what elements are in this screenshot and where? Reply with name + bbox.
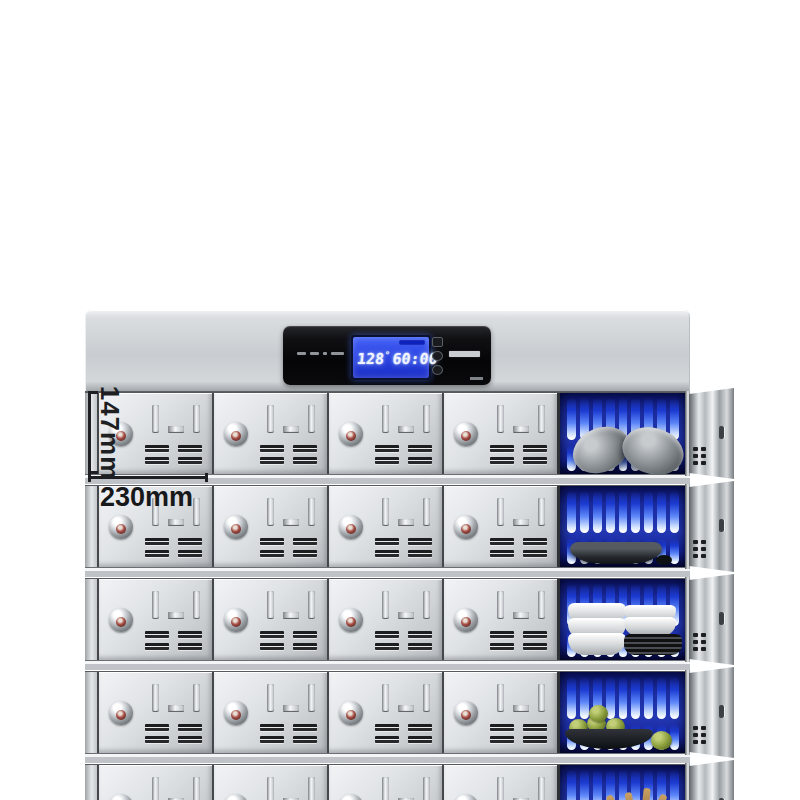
model-label	[470, 377, 483, 380]
open-compartment	[557, 765, 686, 800]
width-dimension-label: 230mm	[100, 482, 208, 513]
vent-slot	[178, 643, 202, 650]
locker-door	[97, 765, 212, 800]
door-lock-icon	[339, 515, 363, 539]
locker-door	[212, 486, 327, 567]
handle-bar	[398, 705, 414, 711]
brand-label	[449, 351, 480, 357]
door-lock-icon	[109, 701, 133, 725]
door-handle	[382, 498, 430, 525]
vent-hole	[693, 640, 698, 644]
lcd-degree-symbol: °	[384, 350, 390, 360]
vent-slot	[375, 631, 399, 638]
vent-slot	[375, 724, 399, 731]
vent-slot	[375, 550, 399, 557]
handle-bar	[193, 405, 200, 432]
dark-fruit-bowl-image	[565, 729, 653, 749]
cabinet-left-frame	[85, 765, 97, 800]
door-vents	[490, 445, 547, 464]
vent-slot	[178, 457, 202, 464]
handle-bar	[513, 519, 529, 525]
vent-slot	[408, 724, 432, 731]
open-door-vents	[693, 540, 706, 558]
handle-bar	[398, 426, 414, 432]
locker-door	[442, 393, 557, 474]
locker-row-3	[85, 578, 690, 661]
vent-slot	[178, 445, 202, 452]
vent-hole	[693, 447, 698, 451]
compartment-contents-dark-plate-and-small-item	[560, 486, 686, 567]
vent-slot	[523, 643, 547, 650]
door-lock-icon	[109, 515, 133, 539]
vent-hole	[693, 726, 698, 730]
door-vents	[375, 631, 432, 650]
door-handle	[382, 777, 430, 800]
vent-slot	[178, 550, 202, 557]
door-lock-icon	[454, 515, 478, 539]
wooden-utensil-image	[640, 788, 651, 800]
handle-bar	[423, 591, 430, 618]
vent-hole	[693, 540, 698, 544]
door-handle	[497, 405, 545, 432]
locker-door	[97, 579, 212, 660]
open-compartment	[557, 579, 686, 660]
vent-slot	[145, 445, 169, 452]
small-item-image	[656, 555, 672, 565]
door-handle	[267, 777, 315, 800]
vent-slot	[523, 457, 547, 464]
vent-slot	[260, 445, 284, 452]
wooden-utensil-image	[605, 794, 626, 800]
vent-slot	[490, 736, 514, 743]
locker-door	[442, 765, 557, 800]
handle-bar	[193, 684, 200, 711]
dark-plate-image	[570, 542, 662, 564]
door-vents	[260, 538, 317, 557]
vent-slot	[375, 445, 399, 452]
door-vents	[145, 445, 202, 464]
open-door-panel	[689, 388, 734, 479]
door-handle	[267, 405, 315, 432]
locker-door	[327, 579, 442, 660]
green-fruit-image	[589, 705, 608, 722]
vent-slot	[375, 643, 399, 650]
vent-slot	[260, 631, 284, 638]
door-handle	[382, 405, 430, 432]
vent-hole	[701, 454, 706, 458]
vent-slot	[523, 736, 547, 743]
vent-slot	[375, 736, 399, 743]
vent-slot	[408, 445, 432, 452]
compartment-contents-two-gray-bowls	[560, 393, 686, 474]
handle-bar	[497, 684, 504, 711]
door-handle	[497, 498, 545, 525]
vent-hole	[701, 447, 706, 451]
handle-bar	[308, 498, 315, 525]
handle-bar	[308, 777, 315, 800]
vent-slot	[145, 724, 169, 731]
vent-slot	[178, 538, 202, 545]
door-handle	[267, 684, 315, 711]
vent-slot	[523, 550, 547, 557]
door-handle	[497, 684, 545, 711]
vent-slot	[523, 538, 547, 545]
vent-hole	[693, 454, 698, 458]
handle-bar	[382, 498, 389, 525]
panel-function-labels	[297, 352, 344, 355]
door-vents	[260, 445, 317, 464]
vent-slot	[260, 643, 284, 650]
vent-slot	[490, 724, 514, 731]
compartment-contents-wooden-utensils-in-canister	[560, 765, 686, 800]
vent-slot	[145, 538, 169, 545]
panel-buttons	[432, 337, 443, 375]
vent-hole	[701, 640, 706, 644]
vent-slot	[145, 457, 169, 464]
door-handle	[267, 591, 315, 618]
vent-hole	[701, 740, 706, 744]
white-bowl	[568, 633, 626, 655]
vent-slot	[293, 643, 317, 650]
vent-slot	[260, 724, 284, 731]
handle-bar	[398, 519, 414, 525]
locker-door	[212, 672, 327, 753]
panel-button-icon	[432, 365, 443, 375]
handle-bar	[267, 405, 274, 432]
open-door-handle	[719, 519, 724, 532]
open-door-panel	[689, 667, 734, 758]
vent-slot	[408, 736, 432, 743]
vent-slot	[145, 550, 169, 557]
vent-hole	[701, 461, 706, 465]
handle-bar	[382, 405, 389, 432]
handle-bar	[152, 684, 159, 711]
handle-bar	[168, 519, 184, 525]
white-bowl-stack-image	[568, 610, 626, 655]
vent-slot	[375, 457, 399, 464]
open-door-panel	[689, 481, 734, 572]
vent-slot	[293, 550, 317, 557]
gray-bowl-image	[617, 420, 686, 474]
handle-bar	[308, 684, 315, 711]
door-vents	[375, 538, 432, 557]
door-lock-icon	[339, 422, 363, 446]
open-door-panel	[689, 760, 734, 800]
handle-bar	[308, 405, 315, 432]
open-compartment	[557, 393, 686, 474]
locker-door	[212, 765, 327, 800]
height-dimension-label: 147mm	[94, 385, 125, 480]
handle-bar	[423, 777, 430, 800]
vent-slot	[293, 445, 317, 452]
door-lock-icon	[454, 422, 478, 446]
vent-slot	[293, 538, 317, 545]
vent-hole	[701, 726, 706, 730]
handle-bar	[423, 405, 430, 432]
vent-hole	[701, 633, 706, 637]
handle-bar	[193, 777, 200, 800]
vent-slot	[490, 538, 514, 545]
handle-bar	[382, 777, 389, 800]
lcd-display: 128 ° 60:00	[351, 335, 431, 380]
vent-hole	[693, 740, 698, 744]
vent-slot	[490, 445, 514, 452]
open-door-handle	[719, 426, 724, 439]
handle-bar	[538, 591, 545, 618]
open-door-handle	[719, 612, 724, 625]
open-door-vents	[693, 447, 706, 465]
vent-slot	[523, 445, 547, 452]
vent-slot	[375, 538, 399, 545]
handle-bar	[423, 684, 430, 711]
door-vents	[145, 631, 202, 650]
vent-slot	[523, 724, 547, 731]
locker-door	[212, 579, 327, 660]
handle-bar	[497, 498, 504, 525]
lcd-digits: 128 ° 60:00	[356, 350, 427, 368]
panel-label-text	[297, 352, 306, 355]
vent-slot	[260, 538, 284, 545]
vent-slot	[293, 736, 317, 743]
handle-bar	[497, 777, 504, 800]
locker-row-4	[85, 671, 690, 754]
handle-bar	[283, 705, 299, 711]
handle-bar	[382, 684, 389, 711]
panel-button-icon	[432, 351, 443, 361]
height-dimension-annotation: 147mm	[88, 391, 135, 474]
product-image-canvas: 128 ° 60:00 147mm 230mm	[0, 0, 800, 800]
door-vents	[260, 724, 317, 743]
handle-bar	[538, 498, 545, 525]
vent-hole	[693, 633, 698, 637]
wooden-utensil-image	[648, 793, 667, 800]
panel-label-text	[323, 352, 327, 355]
vent-slot	[178, 736, 202, 743]
handle-bar	[538, 777, 545, 800]
door-lock-icon	[454, 794, 478, 800]
vent-hole	[701, 554, 706, 558]
vent-hole	[693, 547, 698, 551]
handle-bar	[193, 591, 200, 618]
vent-slot	[490, 631, 514, 638]
door-vents	[490, 631, 547, 650]
open-door-vents	[693, 633, 706, 651]
locker-door	[327, 393, 442, 474]
open-compartment	[557, 486, 686, 567]
green-fruit-image	[651, 731, 672, 750]
compartment-contents-green-fruits-in-dark-bowl	[560, 672, 686, 753]
bowl-plate-stack-image	[624, 612, 682, 655]
vent-slot	[178, 724, 202, 731]
vent-slot	[145, 736, 169, 743]
door-handle	[382, 591, 430, 618]
handle-bar	[283, 612, 299, 618]
cabinet-left-frame	[85, 579, 97, 660]
handle-bar	[283, 426, 299, 432]
open-door-panel	[689, 574, 734, 665]
handle-bar	[168, 705, 184, 711]
locker-door	[327, 486, 442, 567]
vent-slot	[260, 550, 284, 557]
door-vents	[145, 724, 202, 743]
lcd-temperature: 128	[356, 350, 385, 368]
vent-slot	[490, 550, 514, 557]
locker-door	[212, 393, 327, 474]
door-handle	[497, 591, 545, 618]
handle-bar	[423, 498, 430, 525]
handle-bar	[308, 591, 315, 618]
locker-door	[327, 672, 442, 753]
handle-bar	[267, 684, 274, 711]
vent-slot	[408, 643, 432, 650]
door-lock-icon	[454, 608, 478, 632]
vent-slot	[408, 631, 432, 638]
handle-bar	[398, 612, 414, 618]
compartment-contents-stacked-white-bowls-and-dark-plates	[560, 579, 686, 660]
handle-bar	[513, 426, 529, 432]
handle-bar	[168, 426, 184, 432]
door-lock-icon	[109, 608, 133, 632]
vent-slot	[408, 457, 432, 464]
vent-hole	[693, 461, 698, 465]
handle-bar	[538, 684, 545, 711]
door-lock-icon	[339, 701, 363, 725]
vent-hole	[701, 733, 706, 737]
locker-row-5	[85, 764, 690, 800]
door-vents	[260, 631, 317, 650]
dark-plate-stack	[624, 634, 682, 655]
vent-hole	[693, 733, 698, 737]
vent-slot	[145, 631, 169, 638]
open-door-vents	[693, 726, 706, 744]
cabinet-top-panel: 128 ° 60:00	[85, 310, 690, 393]
handle-bar	[267, 777, 274, 800]
vent-slot	[523, 631, 547, 638]
handle-bar	[152, 591, 159, 618]
handle-bar	[497, 591, 504, 618]
vent-slot	[293, 457, 317, 464]
vent-slot	[145, 643, 169, 650]
vent-slot	[490, 643, 514, 650]
door-handle	[267, 498, 315, 525]
width-dimension-line	[88, 476, 208, 479]
locker-row-1	[85, 392, 690, 475]
door-lock-icon	[224, 422, 248, 446]
handle-bar	[513, 612, 529, 618]
handle-bar	[152, 777, 159, 800]
door-lock-icon	[224, 701, 248, 725]
panel-label-text	[310, 352, 319, 355]
locker-door	[327, 765, 442, 800]
handle-bar	[152, 405, 159, 432]
vent-hole	[701, 647, 706, 651]
door-handle	[497, 777, 545, 800]
door-vents	[375, 445, 432, 464]
handle-bar	[267, 591, 274, 618]
vent-slot	[408, 538, 432, 545]
vent-slot	[293, 724, 317, 731]
door-vents	[375, 724, 432, 743]
door-lock-icon	[224, 515, 248, 539]
handle-bar	[538, 405, 545, 432]
door-lock-icon	[109, 794, 133, 800]
wooden-utensil-image	[624, 792, 636, 800]
open-door-handle	[719, 705, 724, 718]
locker-rows	[85, 392, 690, 800]
handle-bar	[283, 519, 299, 525]
door-lock-icon	[339, 794, 363, 800]
vent-hole	[701, 547, 706, 551]
vent-slot	[490, 457, 514, 464]
door-vents	[490, 538, 547, 557]
door-handle	[152, 405, 200, 432]
locker-door	[97, 672, 212, 753]
open-compartment	[557, 672, 686, 753]
panel-label-text	[331, 352, 344, 355]
locker-door	[442, 579, 557, 660]
vent-hole	[701, 540, 706, 544]
door-handle	[382, 684, 430, 711]
vent-hole	[693, 647, 698, 651]
handle-bar	[168, 612, 184, 618]
vent-slot	[178, 631, 202, 638]
vent-slot	[260, 457, 284, 464]
door-lock-icon	[224, 608, 248, 632]
door-lock-icon	[339, 608, 363, 632]
cabinet: 128 ° 60:00	[85, 310, 690, 800]
handle-bar	[382, 591, 389, 618]
vent-slot	[260, 736, 284, 743]
vent-hole	[693, 554, 698, 558]
handle-bar	[497, 405, 504, 432]
vent-slot	[408, 550, 432, 557]
handle-bar	[267, 498, 274, 525]
door-lock-icon	[224, 794, 248, 800]
door-lock-icon	[454, 701, 478, 725]
door-vents	[145, 538, 202, 557]
lcd-status-bar	[399, 340, 425, 345]
door-vents	[490, 724, 547, 743]
panel-button-icon	[432, 337, 443, 347]
door-handle	[152, 777, 200, 800]
cabinet-left-frame	[85, 672, 97, 753]
door-handle	[152, 684, 200, 711]
handle-bar	[513, 705, 529, 711]
control-panel: 128 ° 60:00	[283, 326, 491, 385]
locker-door	[442, 672, 557, 753]
vent-slot	[293, 631, 317, 638]
width-dimension-annotation: 230mm	[88, 476, 208, 513]
door-handle	[152, 591, 200, 618]
locker-door	[442, 486, 557, 567]
